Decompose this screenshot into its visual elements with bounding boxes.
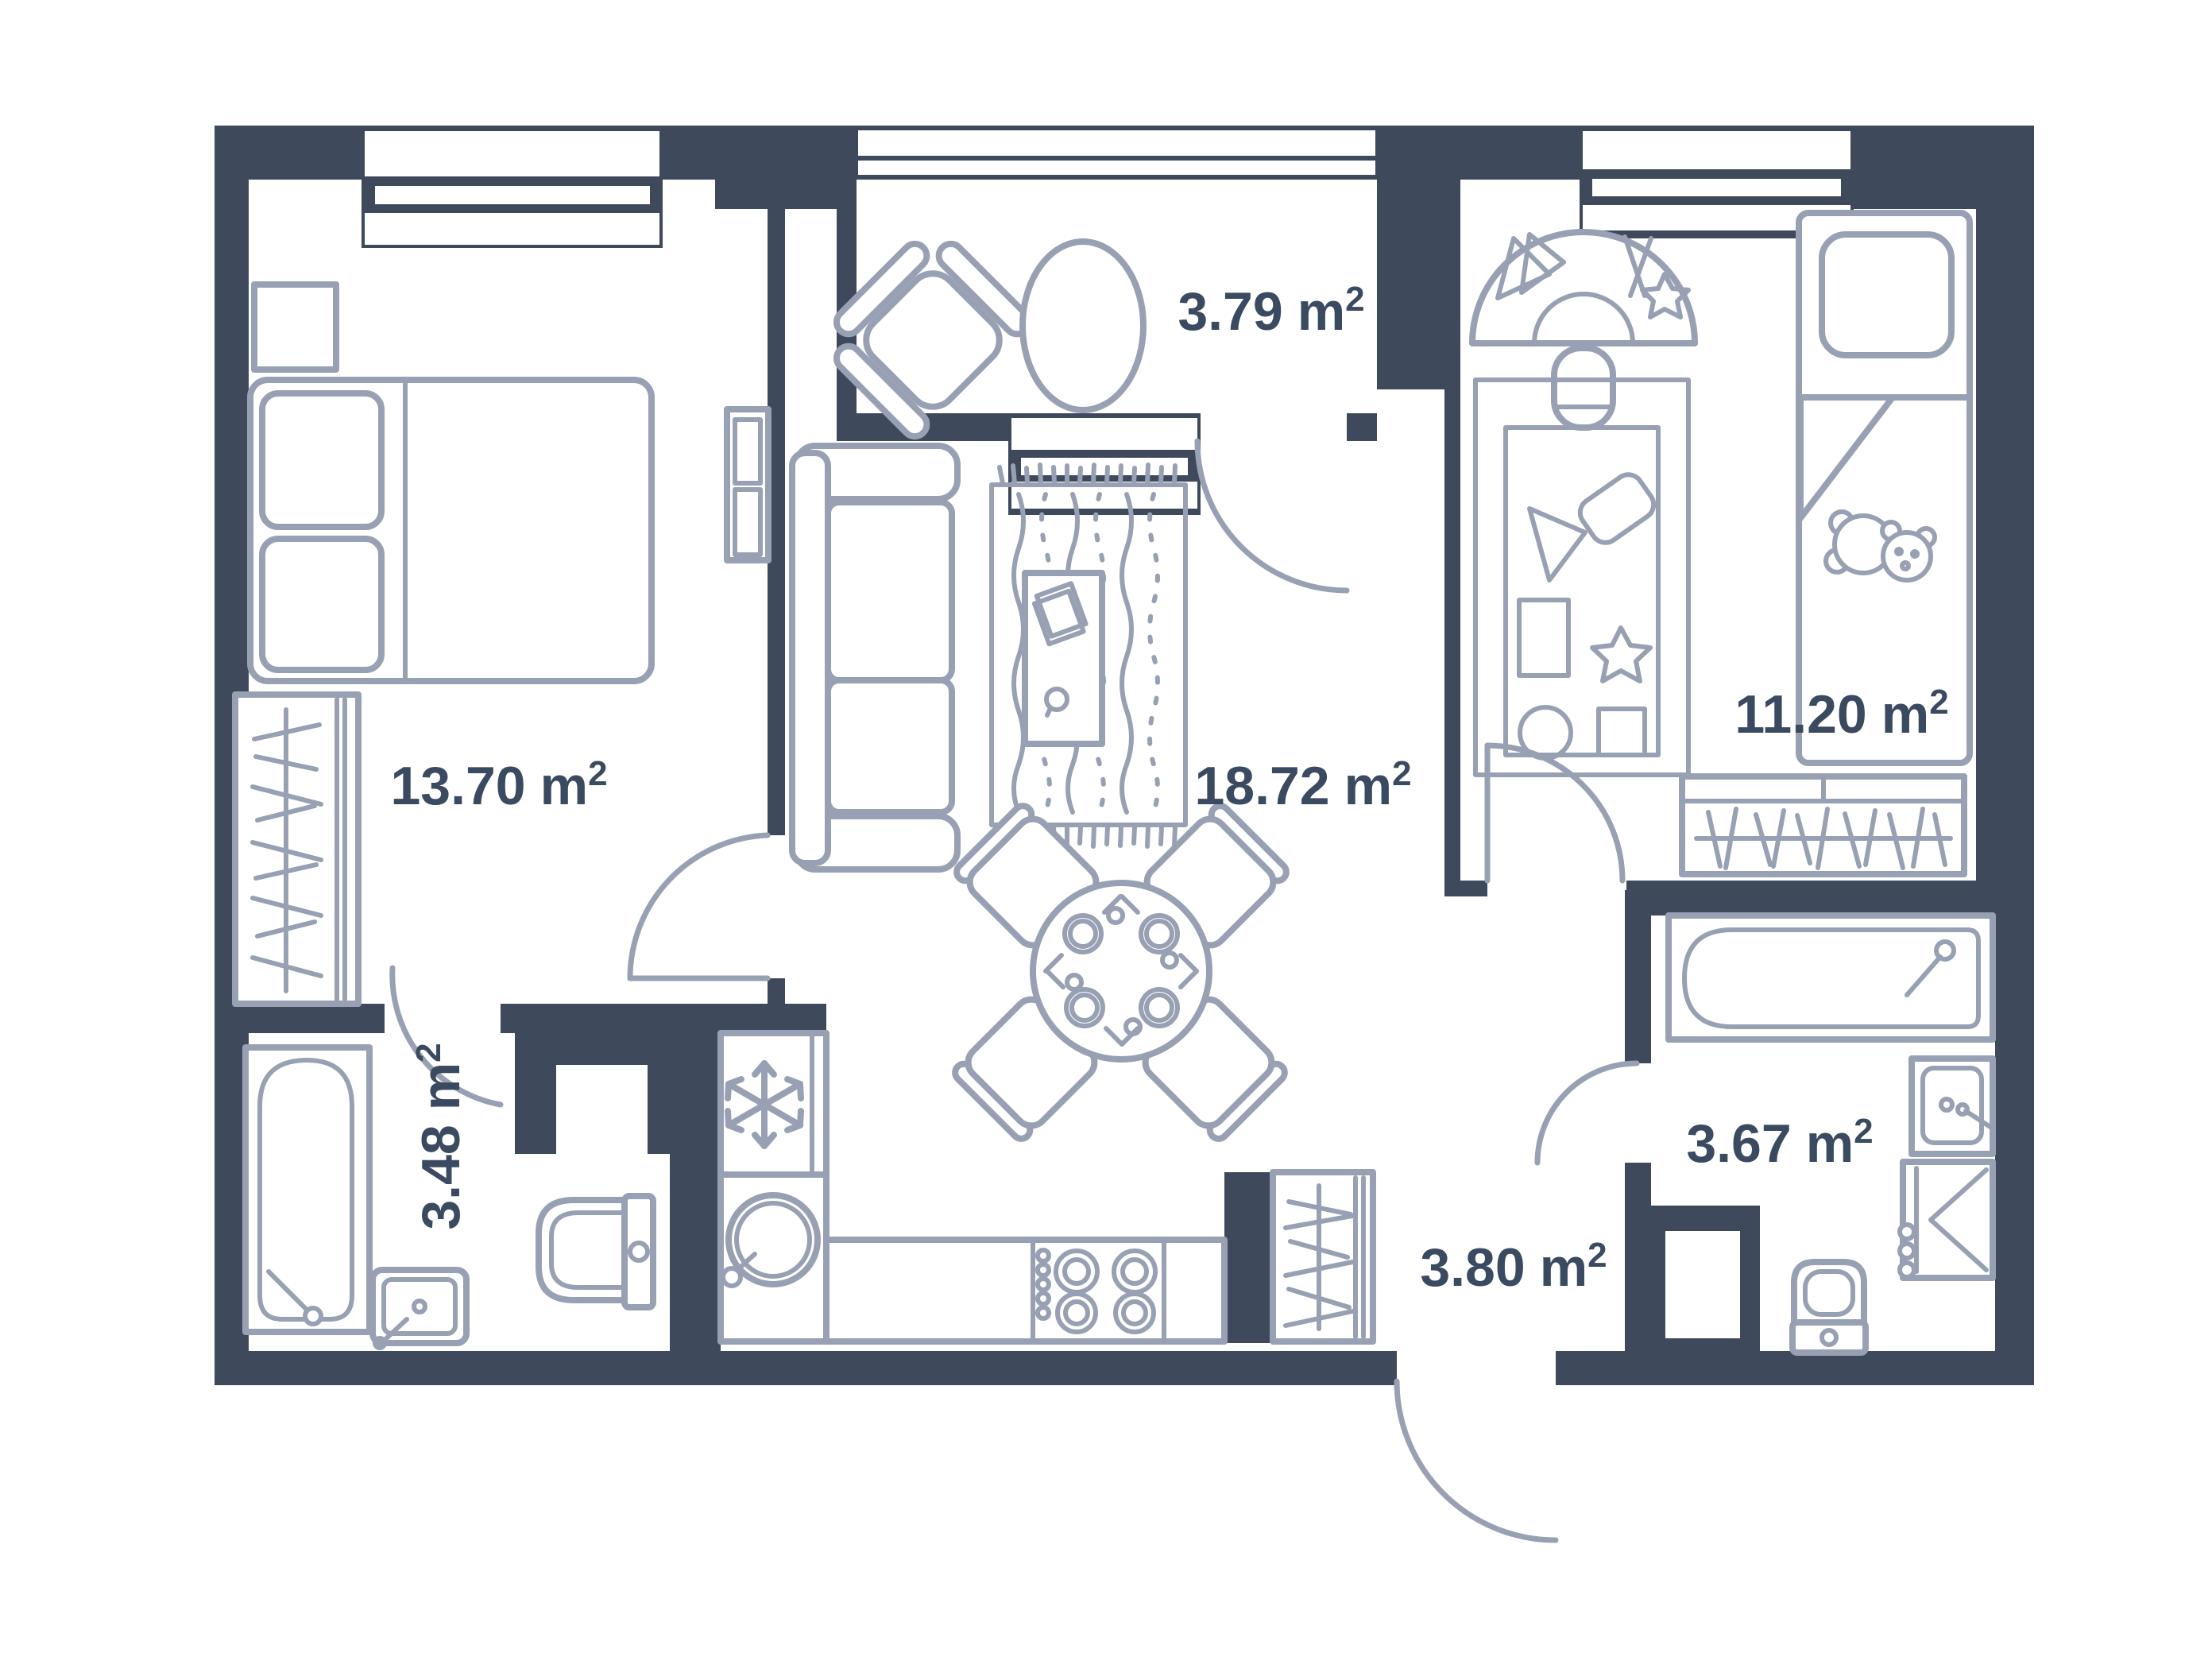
- play-rug: [1475, 380, 1688, 775]
- bedroom-door: [630, 835, 768, 978]
- balcony-living-window: [1008, 413, 1201, 515]
- room-label-living-room: 18.72m2: [1194, 754, 1411, 816]
- floor-plan-svg: 13.70m2 3.79m2 18.72m2 11.20m2 3.48m2 3.…: [0, 0, 2212, 1653]
- kitchen-sink-cabinet: [721, 1175, 826, 1341]
- toilet-2: [1792, 1262, 1866, 1353]
- dresser: [727, 409, 768, 560]
- dining-set: [952, 803, 1290, 1143]
- room-label-bedroom: 13.70m2: [390, 754, 607, 816]
- fridge: [721, 1033, 826, 1175]
- double-bed: [250, 380, 652, 681]
- balcony-table: [1023, 242, 1143, 410]
- bathroom-2-sink: [1912, 1059, 1993, 1154]
- room-label-bathroom-2: 3.67m2: [1686, 1112, 1873, 1174]
- hallway-wardrobe: [1273, 1172, 1373, 1341]
- nightstand: [254, 285, 336, 370]
- sofa: [792, 446, 957, 869]
- kids-wardrobe: [1682, 776, 1964, 874]
- entrance-door: [1397, 1381, 1556, 1540]
- bathtub-2: [1669, 916, 1993, 1039]
- kids-room-door: [1487, 745, 1622, 881]
- room-label-kids-room: 11.20m2: [1734, 683, 1948, 745]
- room-label-balcony: 3.79m2: [1178, 280, 1364, 342]
- bathroom-2-door: [1537, 1063, 1637, 1163]
- kids-bed: [1799, 213, 1970, 763]
- washing-machine: [1900, 1162, 1993, 1278]
- coffee-table: [1025, 573, 1102, 744]
- play-mat: [1472, 232, 1695, 428]
- star-icon: [1592, 628, 1650, 681]
- floor-plan: 13.70m2 3.79m2 18.72m2 11.20m2 3.48m2 3.…: [0, 0, 2212, 1653]
- bedroom-window: [362, 126, 663, 248]
- kitchen-counter: [826, 1240, 1224, 1341]
- room-label-hallway: 3.80m2: [1420, 1236, 1607, 1298]
- balcony-window: [858, 130, 1375, 175]
- bathroom-sink: [373, 1270, 466, 1348]
- room-label-bathroom: 3.48m2: [409, 1043, 471, 1229]
- toilet: [539, 1196, 653, 1307]
- bedroom-wardrobe: [235, 695, 358, 1004]
- bathtub: [246, 1047, 369, 1332]
- balcony-door: [1197, 441, 1347, 590]
